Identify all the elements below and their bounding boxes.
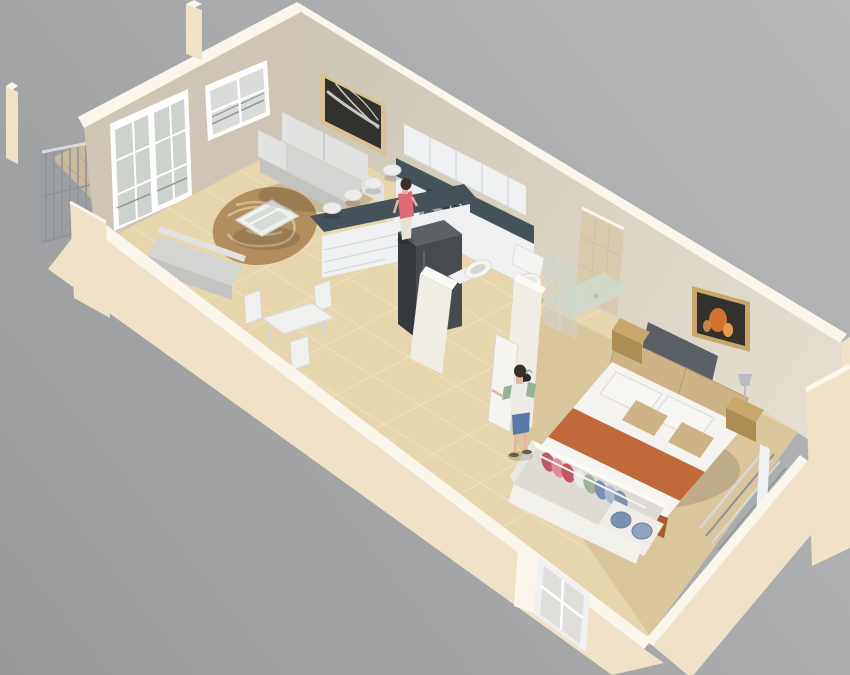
- man-leg-right: [525, 430, 526, 450]
- bar-stool: [323, 203, 341, 220]
- man-shorts: [512, 411, 530, 435]
- art-flame-small2: [703, 320, 711, 332]
- woman-bag: [393, 217, 401, 227]
- shower-glass-1: [544, 250, 560, 330]
- dining-chair-1: [244, 290, 262, 324]
- man-sandal-left: [509, 453, 519, 457]
- man-sandal-right: [522, 450, 532, 454]
- folded-clothes-2: [632, 523, 652, 539]
- floor-plan-stage: [0, 0, 850, 675]
- floor-plan-render: [0, 0, 850, 675]
- woman-pants: [400, 215, 412, 240]
- man-hair: [514, 365, 526, 378]
- bar-stool: [383, 165, 401, 182]
- woman-hair: [401, 178, 412, 190]
- bar-stool: [364, 178, 382, 195]
- woman-top: [398, 191, 414, 219]
- dining-chair-3: [290, 336, 310, 370]
- se-wall-end-panel: [806, 366, 850, 566]
- art-flame-small: [723, 323, 733, 337]
- man-leg-left: [515, 432, 516, 452]
- shower-drain: [594, 294, 599, 299]
- folded-clothes-1: [611, 512, 631, 528]
- shower-glass-2: [560, 258, 576, 338]
- bar-stool: [344, 190, 362, 207]
- balcony-post-left: [6, 82, 18, 164]
